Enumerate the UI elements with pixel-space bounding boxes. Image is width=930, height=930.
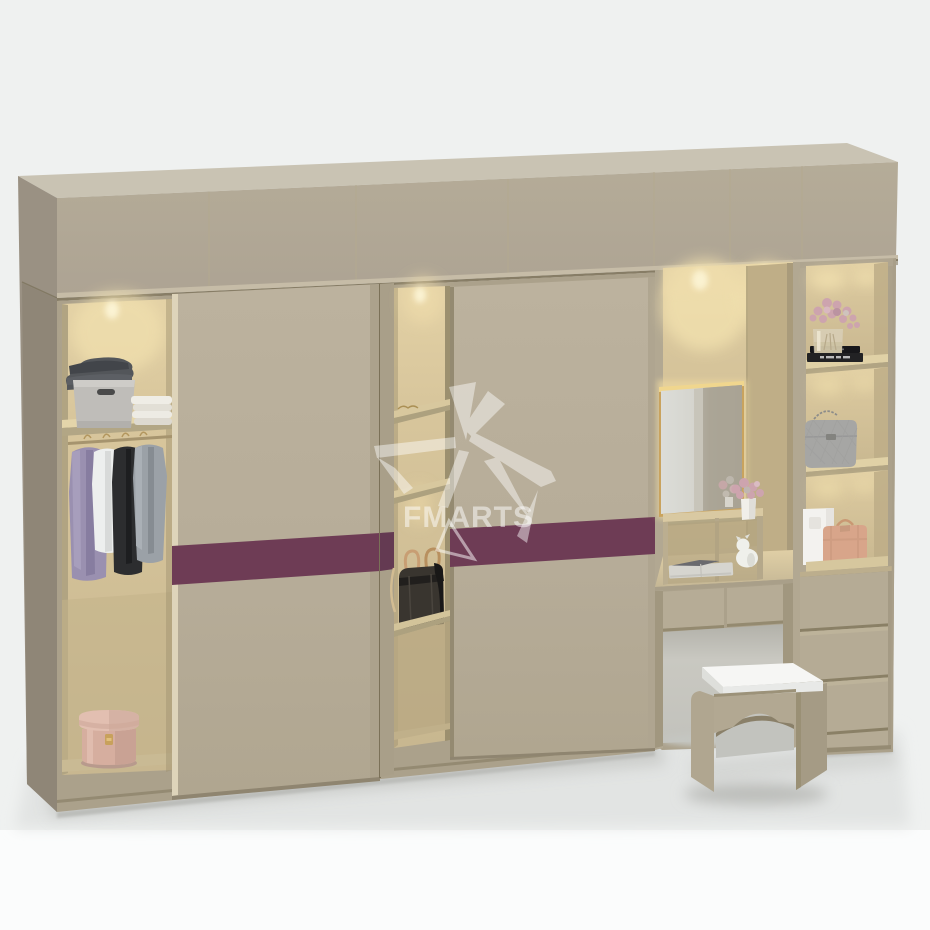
svg-text:FMARTS: FMARTS xyxy=(403,501,534,534)
